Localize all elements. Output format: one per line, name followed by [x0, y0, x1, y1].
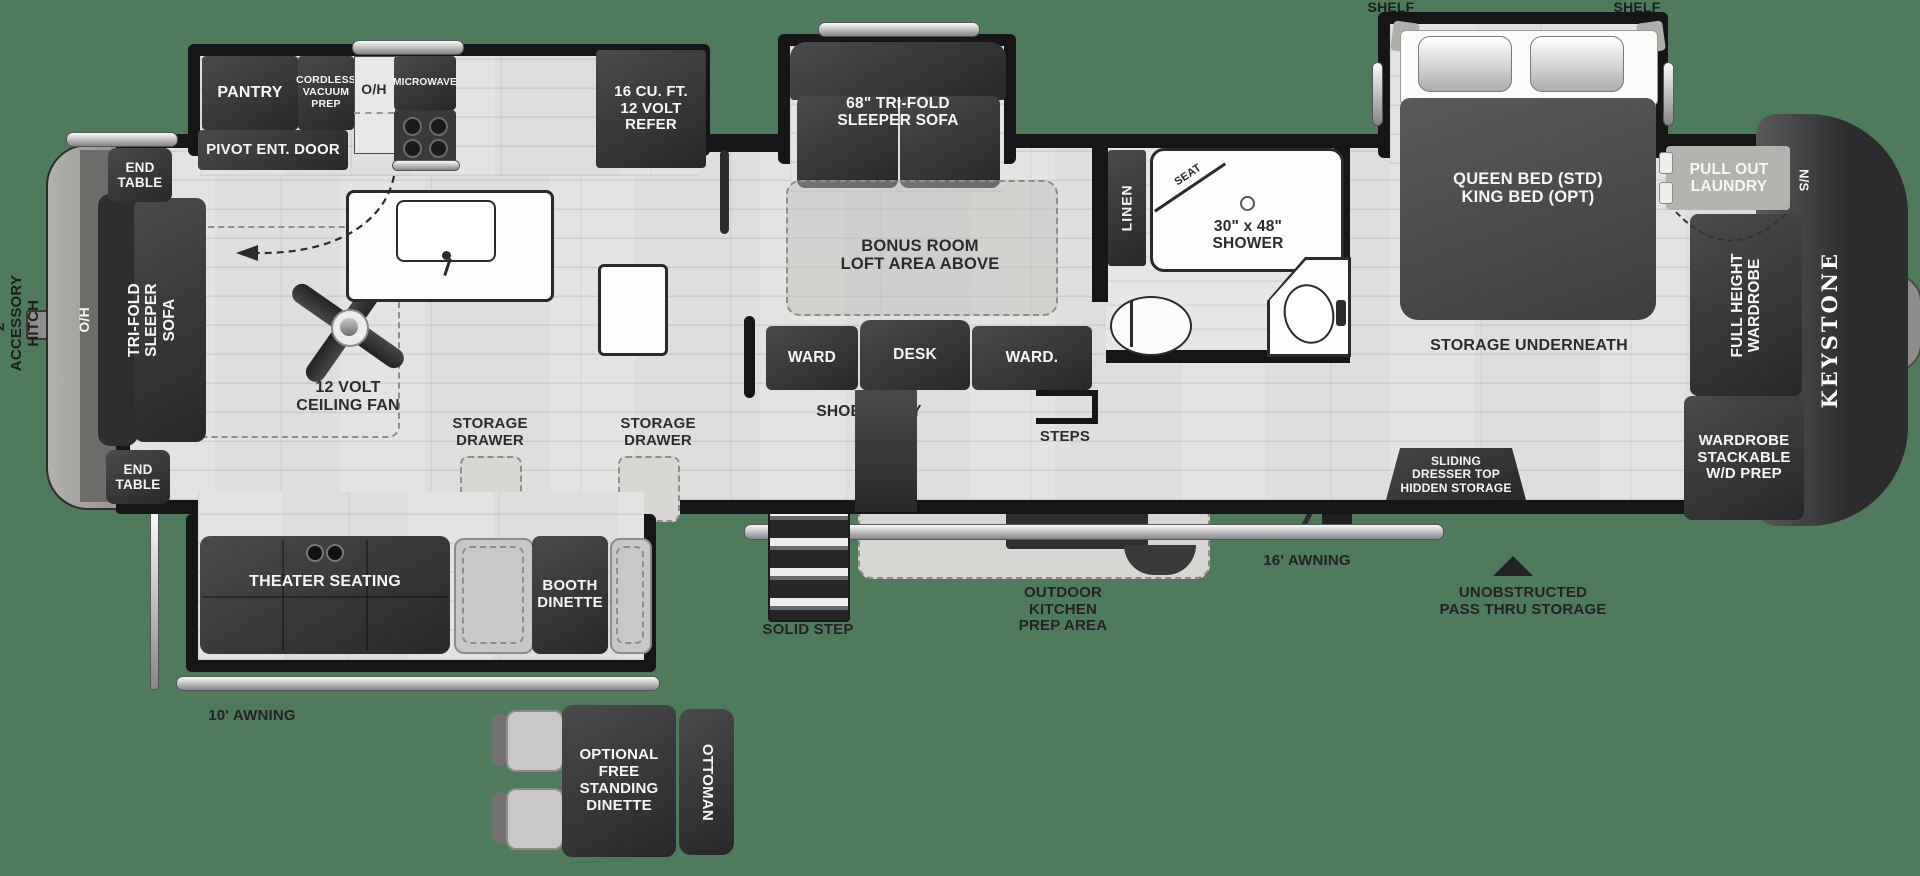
keystone-logo: KEYSTONE [1818, 251, 1842, 409]
rear-sofa-label: TRI-FOLD SLEEPER SOFA [126, 268, 178, 372]
stove-icon [394, 110, 456, 164]
window [720, 150, 729, 234]
rv-floorplan: 2" ACCESSORY HITCH 10' AWNING 16' AWNING… [0, 0, 1920, 876]
nightstand-label: N/S [1796, 169, 1811, 191]
shelf-right-label: SHELF [1606, 0, 1668, 16]
sliding-dresser-label: SLIDING DRESSER TOP HIDDEN STORAGE [1390, 452, 1522, 498]
linen-label-wrap: LINEN [1108, 150, 1146, 266]
awning-16-label: 16' AWNING [1250, 551, 1364, 571]
theater-seating-label: THEATER SEATING [208, 572, 442, 592]
pillow-right [1530, 36, 1624, 92]
toilet-icon [1110, 296, 1192, 356]
pass-thru-arrow-icon [1493, 556, 1533, 576]
stove-burner-1 [403, 117, 422, 136]
dinette-chair-1 [506, 710, 564, 772]
keystone-logo-wrap: KEYSTONE [1812, 240, 1848, 420]
ceiling-fan-hub-inner [340, 318, 358, 336]
theater-seating [200, 536, 450, 654]
stove-burner-4 [429, 139, 448, 158]
pivot-entry-door-label: PIVOT ENT. DOOR [198, 130, 348, 170]
end-table-top-label: END TABLE [108, 148, 172, 202]
entry-landing [855, 390, 917, 512]
theater-divider-h [202, 596, 448, 598]
bed-window-right [1663, 62, 1674, 126]
rear-overhead-wrap: O/H [72, 288, 98, 352]
shower-label: 30" x 48" SHOWER [1184, 214, 1312, 256]
steps-icon-top [1036, 390, 1098, 396]
pantry-label: PANTRY [202, 56, 298, 130]
shower-drain [1240, 196, 1255, 211]
nightstand-label-wrap: N/S [1790, 148, 1816, 212]
wardrobe-right-label: WARD. [972, 326, 1092, 390]
cupholder-1 [306, 544, 324, 562]
rear-overhead-label: O/H [77, 307, 93, 333]
awning-10-label: 10' AWNING [196, 705, 308, 727]
full-height-wardrobe-label-wrap: FULL HEIGHT WARDROBE [1690, 214, 1802, 396]
toilet-divider [1130, 301, 1133, 347]
booth-dinette-label: BOOTH DINETTE [532, 536, 608, 654]
counter-extension [598, 264, 668, 356]
wardrobe-left-label: WARD [766, 326, 858, 390]
sofa-slide-handle [818, 22, 980, 37]
range-hood-handle [352, 40, 464, 55]
storage-underneath-label: STORAGE UNDERNEATH [1414, 336, 1644, 356]
laundry-tab-1 [1659, 152, 1673, 174]
full-height-wardrobe-label: FULL HEIGHT WARDROBE [1729, 253, 1764, 357]
pillow-left [1418, 36, 1512, 92]
outdoor-kitchen-label: OUTDOOR KITCHEN PREP AREA [1000, 580, 1126, 640]
steps-label: STEPS [1028, 428, 1102, 446]
wardrobe-stackable-label: WARDROBE STACKABLE W/D PREP [1684, 396, 1804, 520]
stove-burner-3 [403, 139, 422, 158]
dinette-chair-2 [506, 788, 564, 850]
bed-window-left [1372, 62, 1383, 126]
laundry-tab-2 [1659, 182, 1673, 204]
ottoman-label: OTTOMAN [698, 744, 715, 821]
rear-awning-pole [150, 510, 159, 690]
theater-divider-1 [282, 540, 284, 650]
refrigerator-label: 16 CU. FT. 12 VOLT REFER [596, 50, 706, 168]
steps-icon-bottom [1036, 418, 1098, 424]
storage-drawer-left-label: STORAGE DRAWER [448, 414, 532, 452]
solid-step-icon [768, 506, 850, 622]
theater-divider-2 [366, 540, 368, 650]
cordless-vacuum-label: CORDLESS VACUUM PREP [298, 56, 354, 130]
end-table-bottom-label: END TABLE [106, 450, 170, 504]
half-wall-cap [744, 316, 755, 398]
accessory-hitch-label-wrap: 2" ACCESSORY HITCH [0, 228, 34, 418]
ceiling-fan-label: 12 VOLT CEILING FAN [282, 376, 414, 418]
accessory-hitch-label: 2" ACCESSORY HITCH [0, 275, 42, 371]
bed-label: QUEEN BED (STD) KING BED (OPT) [1418, 164, 1638, 212]
dinette-ottoman-label-wrap: OTTOMAN [679, 709, 734, 855]
pass-thru-label: UNOBSTRUCTED PASS THRU STORAGE [1428, 582, 1618, 622]
stove-burner-2 [429, 117, 448, 136]
shelf-left-label: SHELF [1360, 0, 1422, 16]
solid-step-label: SOLID STEP [756, 620, 860, 640]
storage-drawer-right-label: STORAGE DRAWER [616, 414, 700, 452]
dinette-table-label: OPTIONAL FREE STANDING DINETTE [566, 715, 672, 847]
bonus-room-label: BONUS ROOM LOFT AREA ABOVE [800, 232, 1040, 278]
oven-handle [392, 160, 460, 171]
counter-dash-line [354, 112, 394, 114]
microwave-label: MICROWAVE [394, 56, 456, 110]
pull-out-laundry-label: PULL OUT LAUNDRY [1672, 148, 1786, 208]
bathroom-wall-left [1092, 136, 1108, 302]
sleeper-sofa-label: 68" TRI-FOLD SLEEPER SOFA [798, 90, 998, 134]
awning-rail-10ft [176, 676, 660, 691]
kitchen-overhead-label: O/H [354, 70, 394, 110]
booth-bench-left-storage [462, 546, 524, 644]
booth-bench-right-storage [616, 546, 644, 644]
linen-label: LINEN [1119, 184, 1135, 231]
end-table-handle [66, 132, 178, 147]
rear-sofa-label-wrap: TRI-FOLD SLEEPER SOFA [100, 200, 204, 440]
vanity-faucet-icon [1336, 300, 1346, 326]
desk-label: DESK [860, 320, 970, 390]
cupholder-2 [326, 544, 344, 562]
